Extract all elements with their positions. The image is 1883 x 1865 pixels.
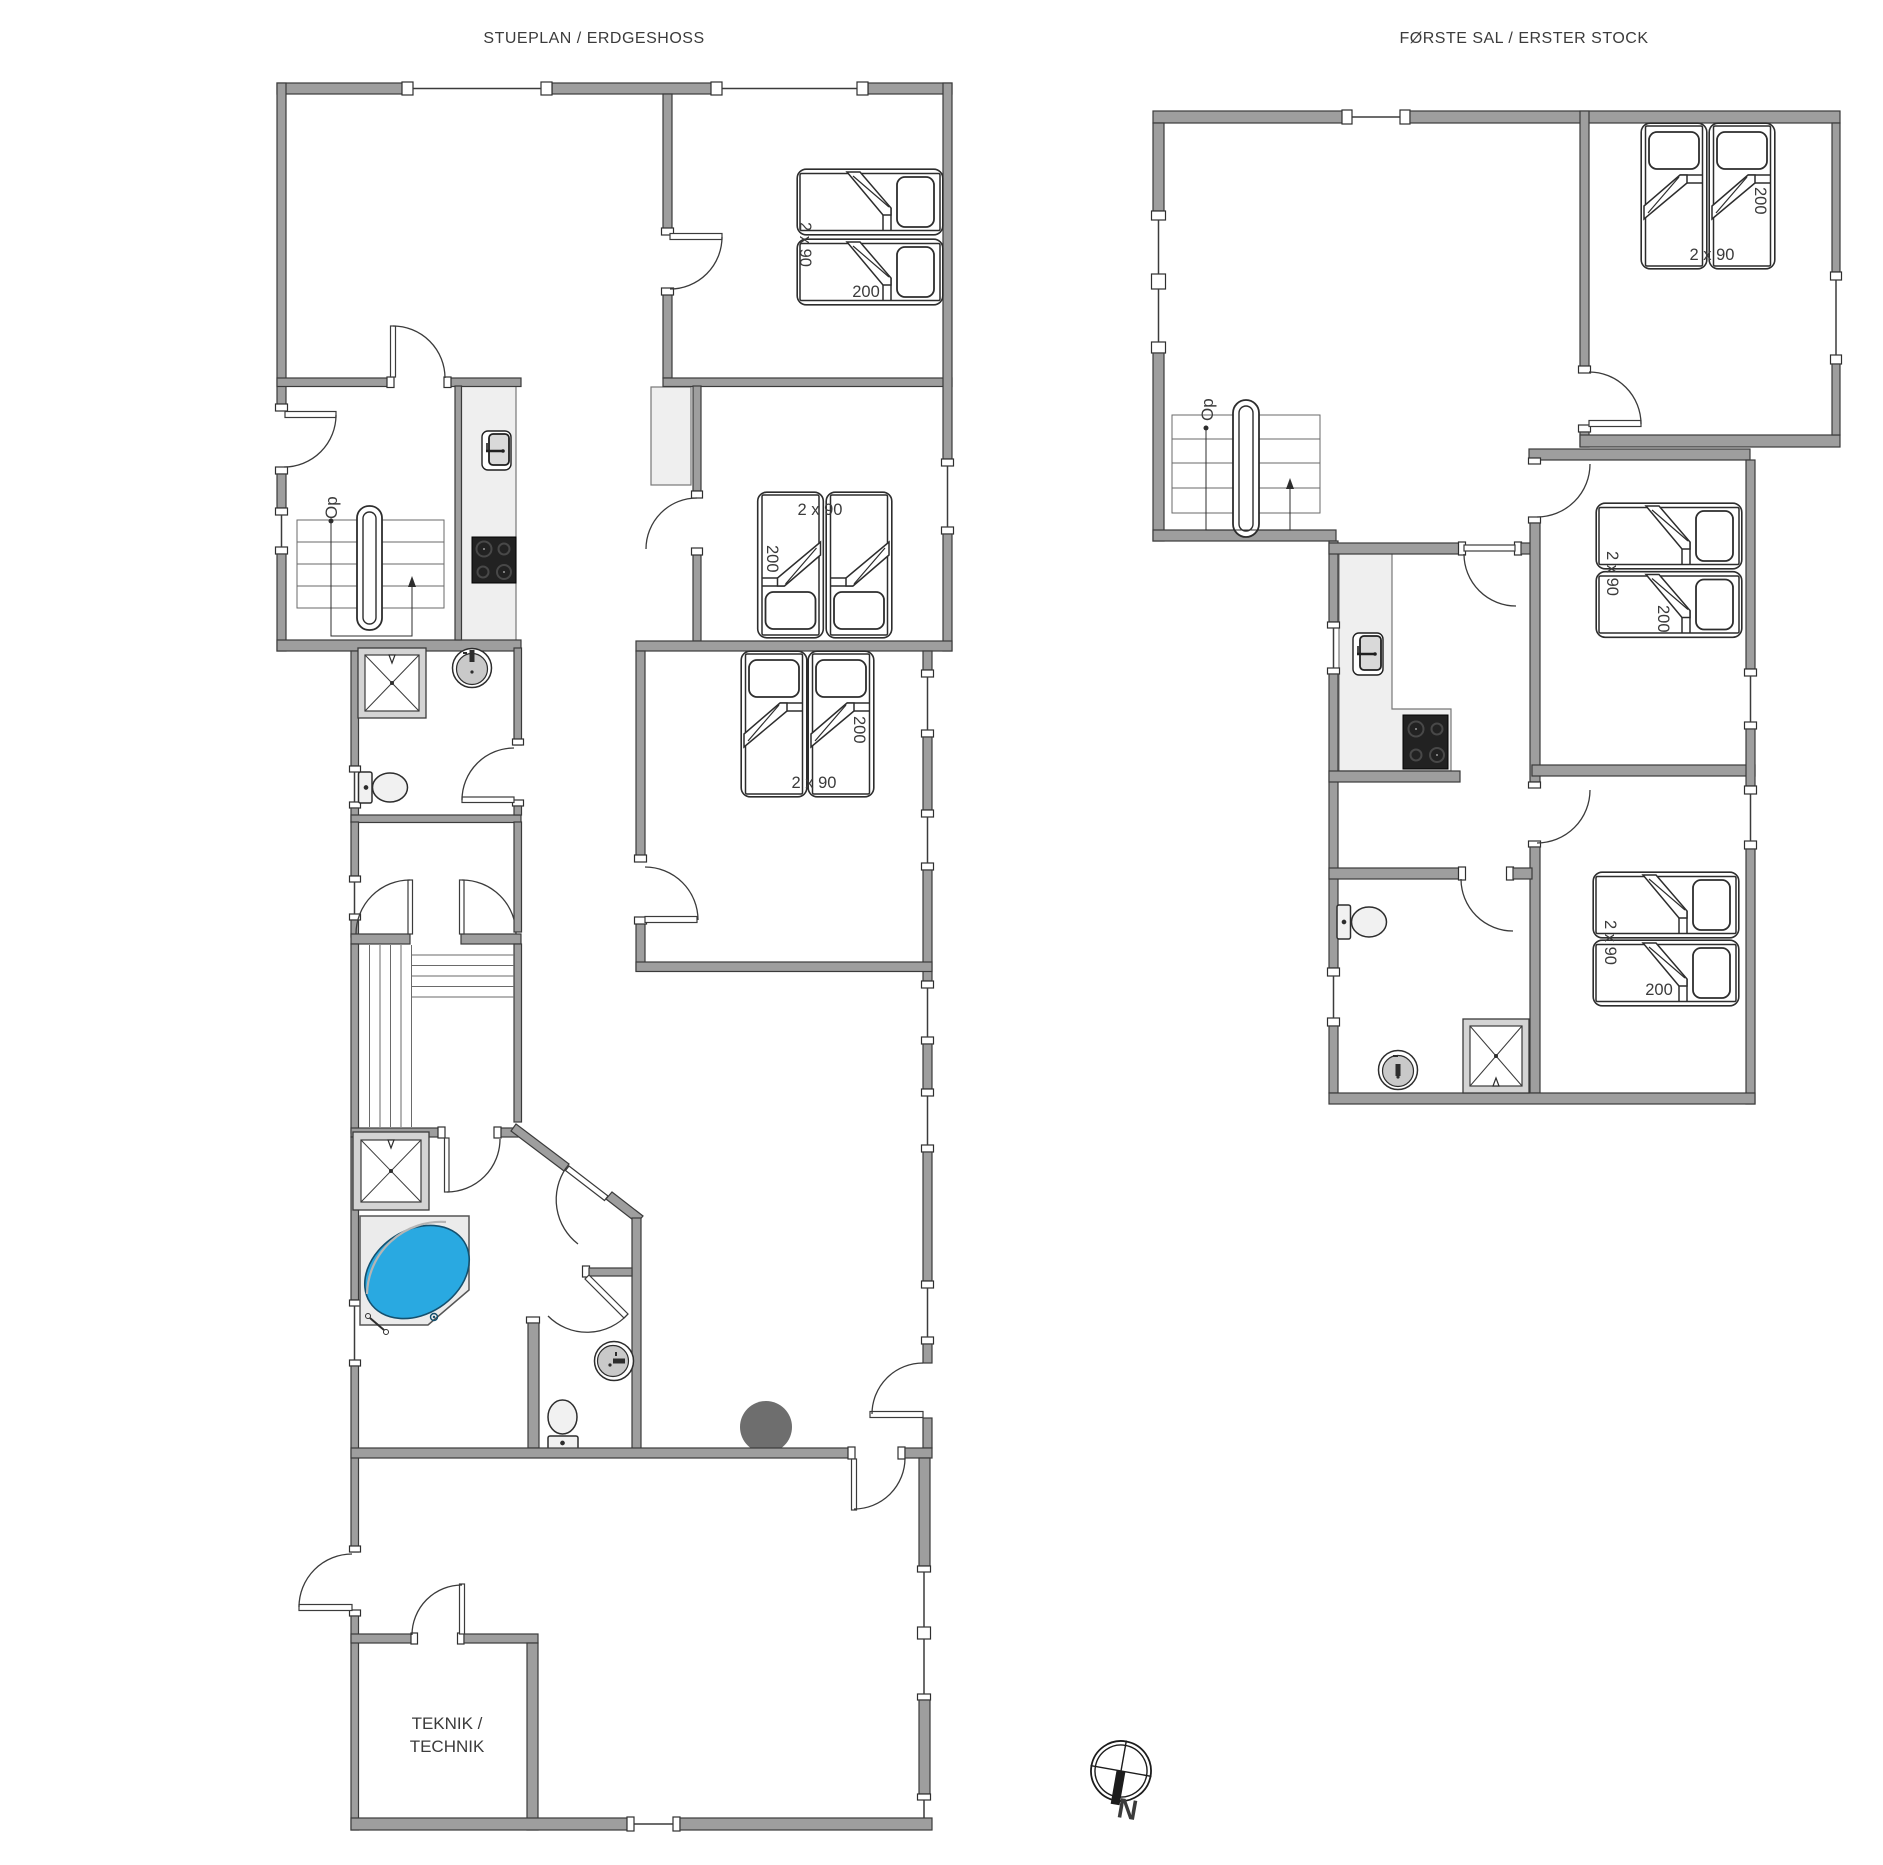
svg-text:200: 200 xyxy=(1645,981,1673,999)
svg-text:FØRSTE SAL / ERSTER STOCK: FØRSTE SAL / ERSTER STOCK xyxy=(1400,30,1649,47)
svg-text:200: 200 xyxy=(852,283,880,301)
svg-text:2 x 90: 2 x 90 xyxy=(1690,246,1735,264)
svg-text:200: 200 xyxy=(850,716,868,744)
svg-text:TEKNIK /: TEKNIK / xyxy=(412,1714,483,1733)
svg-text:2 x 90: 2 x 90 xyxy=(1601,920,1619,965)
svg-text:TECHNIK: TECHNIK xyxy=(410,1737,485,1756)
svg-text:Op: Op xyxy=(322,496,341,519)
svg-text:Op: Op xyxy=(1198,398,1217,421)
svg-text:STUEPLAN / ERDGESHOSS: STUEPLAN / ERDGESHOSS xyxy=(483,30,704,47)
svg-text:200: 200 xyxy=(1751,187,1769,215)
svg-text:2 x 90: 2 x 90 xyxy=(1603,551,1621,596)
svg-text:2 x 90: 2 x 90 xyxy=(796,222,814,267)
svg-text:2 x 90: 2 x 90 xyxy=(798,501,843,519)
svg-text:200: 200 xyxy=(763,545,781,573)
svg-text:200: 200 xyxy=(1654,605,1672,633)
svg-text:2 x 90: 2 x 90 xyxy=(792,774,837,792)
